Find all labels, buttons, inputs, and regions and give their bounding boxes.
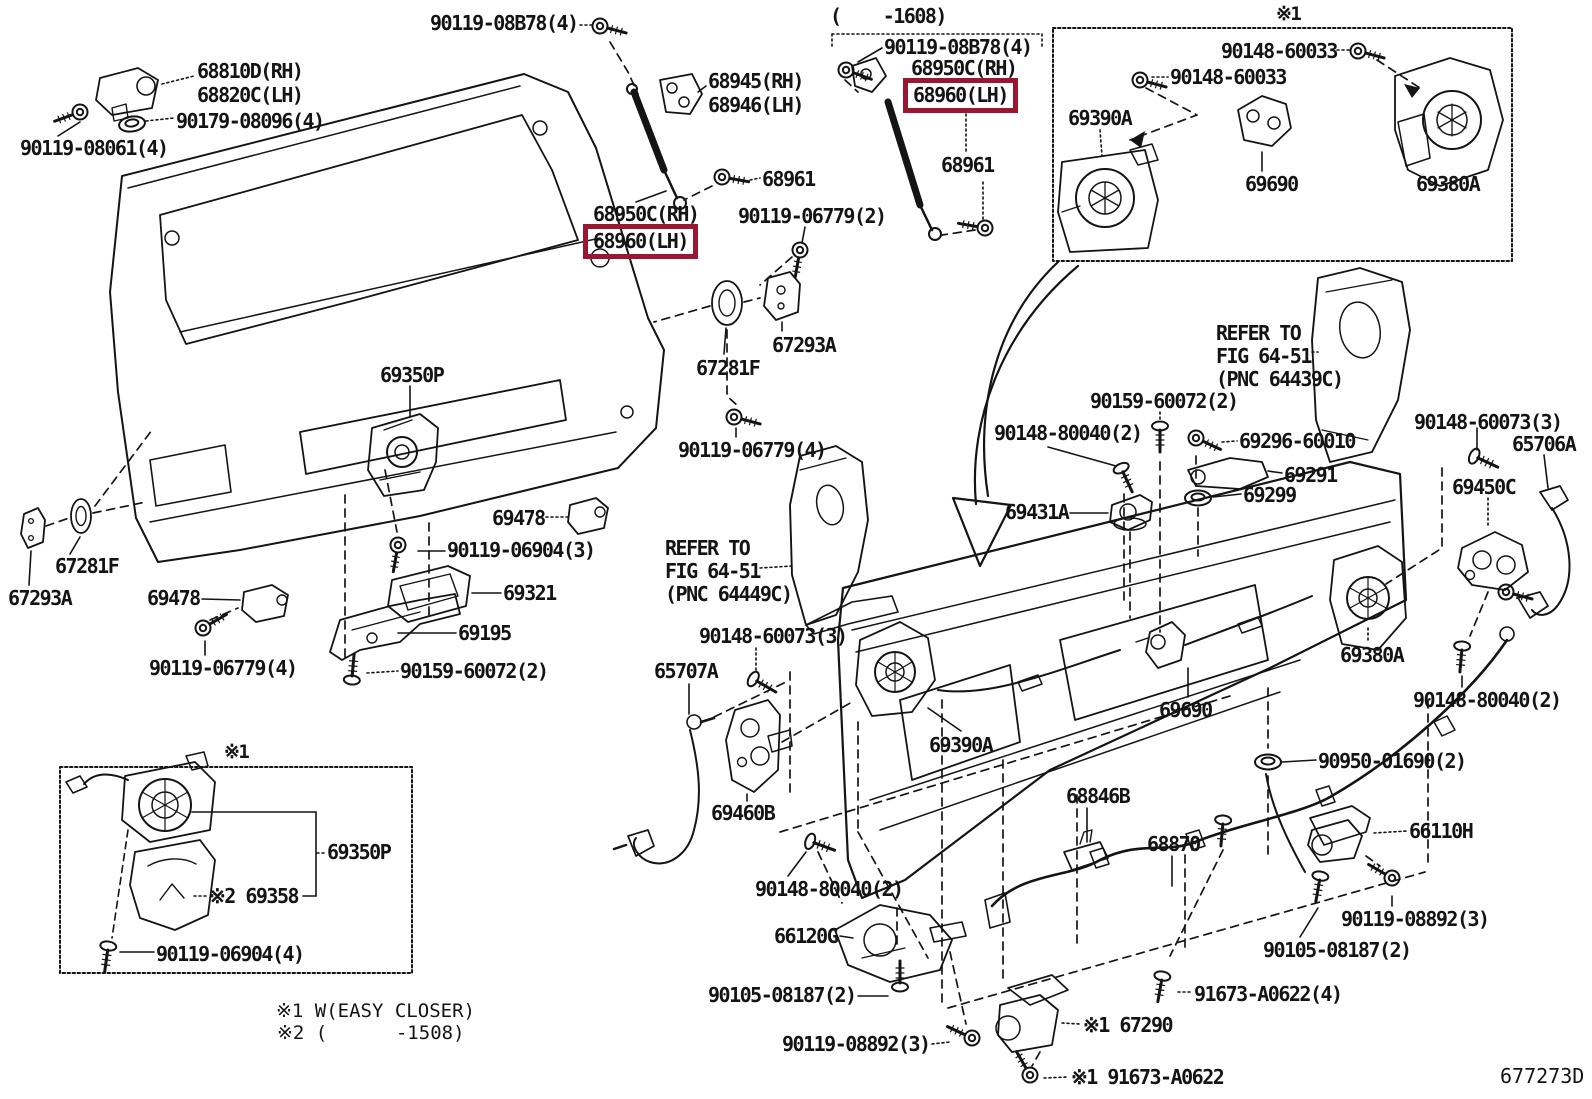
lock-69380a-detail [1395,58,1503,186]
footnote-1: ※1 W(EASY CLOSER) [276,1001,475,1022]
back-door-panel [110,74,664,562]
part-label-90119-08892-l: 90119-08892(3) [782,1033,930,1055]
part-label-66110h: 66110H [1409,820,1472,842]
part-label-90105-08187-r: 90105-08187(2) [1263,939,1411,961]
lock-66120g [835,905,982,1048]
part-label-90148-80040-c: 90148-80040(2) [994,422,1142,444]
part-label-90105-08187-l: 90105-08187(2) [708,984,856,1006]
part-label-90148-60033-a: 90148-60033 [1221,40,1337,62]
part-label-67293a-left: 67293A [8,587,71,609]
part-label-90119-08061: 90119-08061(4) [20,137,168,159]
part-label-69350p: 69350P [380,364,443,386]
ref-left-line3: (PNC 64449C) [665,583,792,605]
part-label-91673-a0622-b: ※1 91673-A0622 [1071,1066,1223,1088]
part-label-90119-06904-4: 90119-06904(4) [156,943,304,965]
part-label-65706a: 65706A [1512,433,1575,455]
actuator-66110h [1308,806,1402,903]
part-label-68961-b: 68961 [941,154,994,176]
ref-right-line1: REFER TO [1216,322,1300,344]
wire-harness-68870 [985,627,1514,928]
part-label-69431a: 69431A [1005,501,1068,523]
part-label-69321: 69321 [503,582,556,604]
part-label-69195: 69195 [458,622,511,644]
ref-right-line2: FIG 64-51 [1216,345,1311,367]
gas-strut-left [627,84,686,209]
part-label-68946: 68946(LH) [708,94,803,116]
part-label-90119-08b78-b: 90119-08B78(4) [884,36,1032,58]
part-label-68950c-a: 68950C(RH) [593,203,698,225]
part-label-65707a: 65707A [654,660,717,682]
parts-diagram-back-door-lock-handle: 90119-08B78(4) 68810D(RH) 68820C(LH) 901… [0,0,1592,1099]
part-label-68960-a-highlighted: 68960(LH) [583,224,698,259]
marker-box-bottom: ※1 [224,742,248,763]
part-label-67281f-right: 67281F [696,357,759,379]
part-label-67290: ※1 67290 [1083,1014,1172,1036]
part-label-69380a-top: 69380A [1416,173,1479,195]
part-label-68820c: 68820C(LH) [197,84,302,106]
lock-cables [938,596,1312,691]
part-label-90159-60072-c: 90159-60072(2) [1090,390,1238,412]
lock-control-69690-panel [1136,622,1185,668]
lock-69390a-detail [1058,144,1158,252]
stay-rod [1255,755,1305,873]
range-bracket-label: ( -1608) [830,5,946,27]
part-label-69350p-box: 69350P [327,841,390,863]
part-label-90148-60033-b: 90148-60033 [1170,66,1286,88]
part-label-69380a-bottom: 69380A [1340,644,1403,666]
part-label-68950c-b: 68950C(RH) [911,57,1016,79]
part-label-90119-08892-r: 90119-08892(3) [1341,908,1489,930]
part-label-90159-60072-l: 90159-60072(2) [400,660,548,682]
part-label-69478-left: 69478 [147,587,200,609]
part-label-90119-06779-4l: 90119-06779(4) [149,657,297,679]
part-label-67281f-left: 67281F [55,555,118,577]
sensor-68810d-68820c [52,68,158,133]
part-label-90148-80040-r: 90148-80040(2) [1413,689,1561,711]
cable-65707a [614,670,780,864]
part-label-69450c: 69450C [1452,476,1515,498]
left-clips [21,499,91,548]
diagram-code: 677273D [1500,1065,1584,1087]
part-label-69296-60010: 69296-60010 [1239,430,1355,452]
part-label-90119-06904-3: 90119-06904(3) [447,539,595,561]
door-lock-69350p [368,414,438,496]
part-label-69390a-bottom: 69390A [929,734,992,756]
part-label-68846b: 68846B [1066,785,1129,807]
part-label-67293a-right: 67293A [772,334,835,356]
footnote-2: ※2 ( -1508) [277,1023,465,1044]
striker-69690-detail [1238,96,1291,146]
corner-garnish-left [790,446,898,634]
part-label-68961-a: 68961 [762,168,815,190]
part-label-91673-a0622-a: 91673-A0622(4) [1194,983,1342,1005]
part-label-90950-01690: 90950-01690(2) [1318,750,1466,772]
ref-left-line2: FIG 64-51 [665,560,760,582]
part-label-68960-b-highlighted: 68960(LH) [903,78,1018,113]
part-label-90148-60073-r: 90148-60073(3) [1414,411,1562,433]
part-label-90119-08b78-a: 90119-08B78(4) [430,12,578,34]
part-label-90148-60073-l: 90148-60073(3) [699,625,847,647]
latch-69390a-panel [856,622,935,716]
mount-bracket-68945 [660,74,702,114]
part-label-69478-right: 69478 [492,507,545,529]
ref-right-line3: (PNC 64439C) [1216,368,1343,390]
part-label-90179-08096: 90179-08096(4) [176,110,324,132]
dashed-arrowheads [1130,84,1420,148]
part-label-68870: 68870 [1147,833,1200,855]
part-label-69460b: 69460B [711,802,774,824]
part-label-90119-06779-4r: 90119-06779(4) [678,439,826,461]
screw-80040-center-left [803,832,837,857]
part-label-68810d: 68810D(RH) [197,60,302,82]
part-label-69299: 69299 [1243,484,1296,506]
part-label-69358: ※2 69358 [209,885,298,907]
bolt-08b78-a [591,17,628,40]
part-label-69690-bottom: 69690 [1159,699,1212,721]
part-label-69390a-top: 69390A [1068,107,1131,129]
part-label-90148-80040-cl: 90148-80040(2) [755,878,903,900]
part-label-90119-06779-2: 90119-06779(2) [738,205,886,227]
part-label-68945: 68945(RH) [708,70,803,92]
marker-box-top: ※1 [1276,4,1300,25]
part-label-69690-top: 69690 [1245,173,1298,195]
ref-left-line1: REFER TO [665,537,749,559]
part-label-66120g: 66120G [774,925,837,947]
striker-69460b [726,700,792,792]
